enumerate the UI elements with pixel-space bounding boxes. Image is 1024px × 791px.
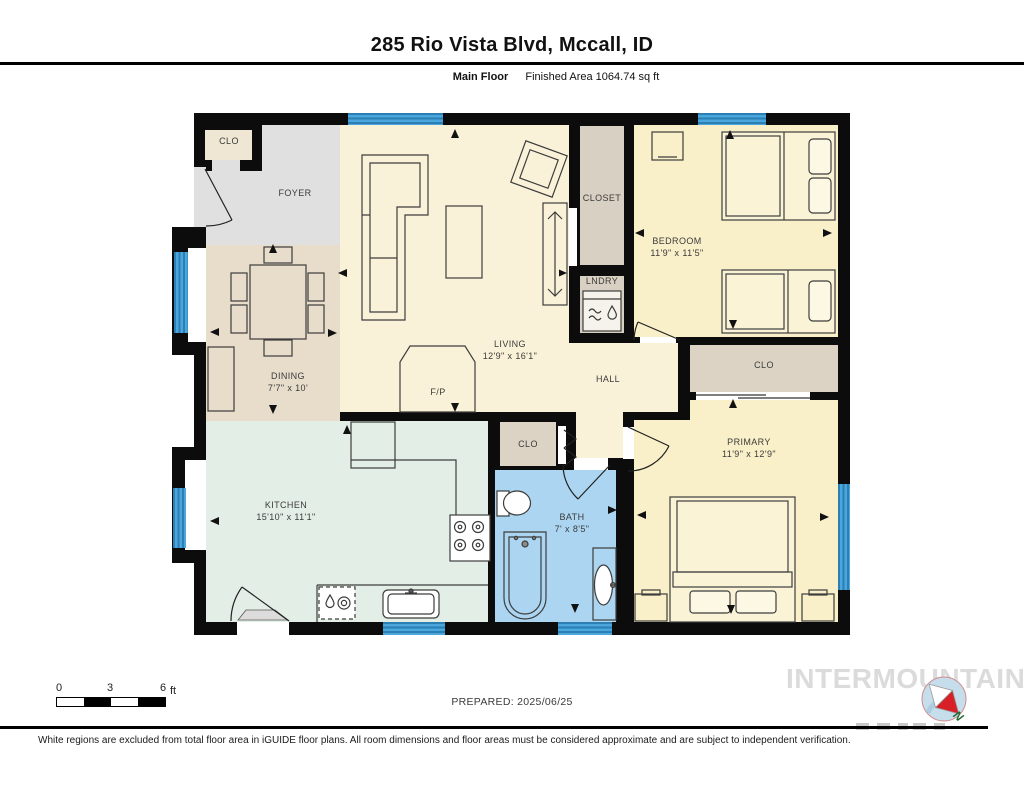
footer-disclaimer: White regions are excluded from total fl… (38, 735, 851, 746)
room-label-fireplace: F/P (430, 387, 445, 399)
scale-tick-6: 6 (160, 682, 166, 694)
prepared-date: PREPARED: 2025/06/25 (0, 696, 1024, 708)
room-label-dining: DINING7'7" x 10' (268, 371, 308, 394)
room-label-bedroom: BEDROOM11'9" x 11'5" (650, 236, 703, 259)
floor-subheader: Main Floor Finished Area 1064.74 sq ft (0, 71, 1024, 83)
room-label-primary: PRIMARY11'9" x 12'9" (722, 437, 776, 460)
room-label-clo-primary: CLO (754, 360, 774, 372)
floorplan-canvas: CLO FOYER DINING7'7" x 10' LIVING12'9" x… (172, 108, 852, 635)
compass-icon (916, 672, 972, 728)
header-divider (0, 62, 1024, 65)
floor-label: Main Floor (453, 71, 509, 83)
page-title: 285 Rio Vista Blvd, Mccall, ID (0, 34, 1024, 57)
room-label-foyer: FOYER (278, 188, 311, 200)
room-label-clo-hall: CLO (518, 439, 538, 451)
finished-area-label: Finished Area 1064.74 sq ft (525, 71, 659, 83)
scale-tick-0: 0 (56, 682, 62, 694)
room-label-clo-entry: CLO (219, 136, 239, 148)
room-label-bath: BATH7' x 8'5" (555, 512, 590, 535)
room-label-living: LIVING12'9" x 16'1" (483, 339, 538, 362)
room-label-laundry: LNDRY (586, 276, 618, 288)
room-label-closet: CLOSET (583, 193, 621, 205)
floorplan-page: 285 Rio Vista Blvd, Mccall, ID Main Floo… (0, 0, 1024, 791)
watermark-text: INTERMOUNTAIN (786, 663, 1024, 695)
footer-divider (0, 726, 988, 729)
room-label-hall: HALL (596, 374, 620, 386)
room-label-kitchen: KITCHEN15'10" x 11'1" (256, 500, 315, 523)
scale-tick-3: 3 (107, 682, 113, 694)
